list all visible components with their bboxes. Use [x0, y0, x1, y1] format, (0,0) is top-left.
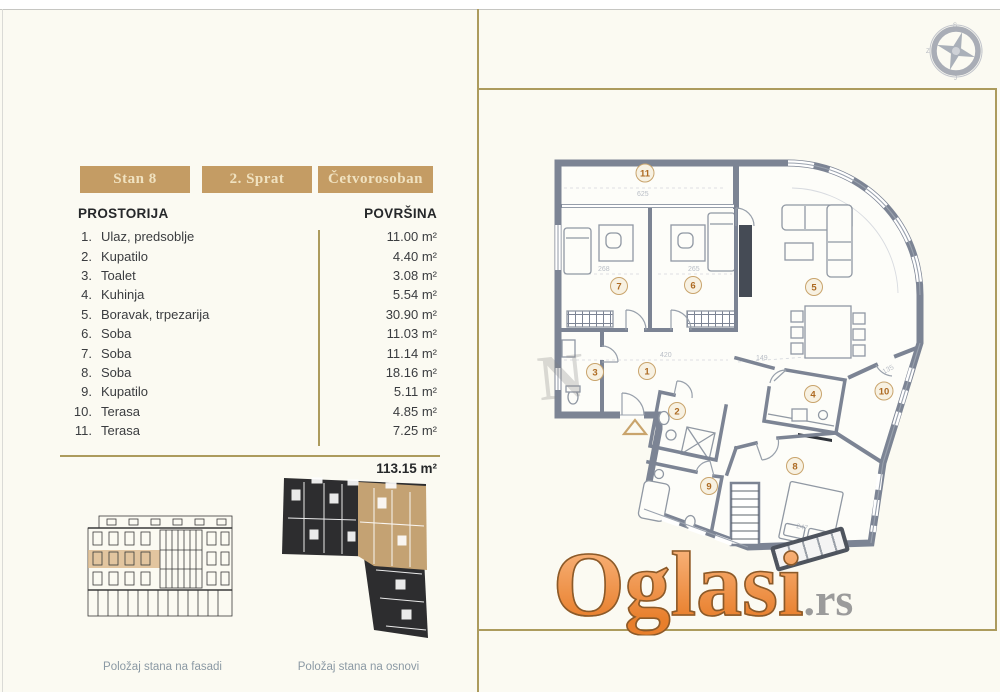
compass-s: J [954, 76, 957, 82]
compass-n: S [953, 23, 957, 29]
badge-type-label: Četvorosoban [328, 171, 423, 188]
svg-text:3: 3 [592, 368, 597, 379]
svg-text:8: 8 [792, 462, 797, 473]
dim-hall: 420 [660, 352, 672, 359]
row-number: 2. [60, 249, 92, 264]
room-number-badge: 11 [636, 164, 654, 182]
table-row: 1.Ulaz, predsoblje11.00 m² [60, 227, 440, 246]
watermark-brand: Oglasi [553, 533, 803, 635]
building-outline-thumbnail [278, 470, 432, 642]
table-row: 6.Soba11.03 m² [60, 324, 440, 343]
floor-plan: 625 268 265 420 149 247 135 1 2 3 4 5 6 … [540, 130, 1000, 600]
room-name: Ulaz, predsoblje [101, 229, 194, 244]
bed-room6 [708, 213, 735, 271]
row-number: 9. [60, 384, 92, 399]
dim-room7: 268 [598, 266, 610, 273]
chair-room6 [678, 233, 693, 248]
svg-text:6: 6 [690, 281, 695, 292]
faint-watermark-letter: N [534, 338, 588, 416]
caption-plan: Položaj stana na osnovi [256, 661, 461, 673]
sink-bath9 [655, 470, 664, 479]
room-area: 11.03 m² [387, 326, 437, 341]
listing-sheet: Stan 8 2. Sprat Četvorosoban PROSTORIJA … [0, 0, 1000, 692]
gold-divider-vertical [477, 9, 479, 692]
compass-w: Z [926, 49, 930, 55]
svg-text:1: 1 [644, 367, 650, 378]
watermark-tld: .rs [803, 574, 853, 625]
dining-table [805, 306, 851, 358]
room-number-badge: 7 [611, 278, 628, 295]
sink-bath2 [666, 430, 676, 440]
caption-facade: Položaj stana na fasadi [60, 661, 265, 673]
room-name: Soba [101, 346, 131, 361]
room-table: 1.Ulaz, predsoblje11.00 m² 2.Kupatilo4.4… [60, 227, 440, 440]
table-row: 9.Kupatilo5.11 m² [60, 382, 440, 401]
svg-text:7: 7 [616, 282, 621, 293]
facade-elevation-thumbnail [85, 512, 237, 618]
site-watermark: Oglasi.rs [553, 538, 853, 630]
room-number-badge: 8 [787, 458, 804, 475]
svg-text:10: 10 [879, 387, 890, 398]
row-number: 6. [60, 326, 92, 341]
wardrobe-living [739, 225, 752, 297]
room-name: Soba [101, 326, 131, 341]
svg-text:9: 9 [706, 482, 711, 493]
compass-e: I [981, 49, 983, 55]
wardrobe-room7 [567, 311, 613, 327]
room-area: 5.54 m² [393, 287, 437, 302]
badge-floor: 2. Sprat [202, 166, 312, 193]
table-row: 11.Terasa7.25 m² [60, 421, 440, 440]
column-header-room: PROSTORIJA [78, 206, 169, 221]
row-number: 5. [60, 307, 92, 322]
room-area: 7.25 m² [393, 423, 437, 438]
room-area: 11.14 m² [387, 346, 437, 361]
row-number: 3. [60, 268, 92, 283]
top-margin [0, 0, 1000, 9]
kitchen-sink [819, 411, 828, 420]
total-rule [60, 455, 440, 457]
room-name: Terasa [101, 423, 140, 438]
chair-room7 [606, 233, 621, 248]
dim-terrace11: 625 [637, 191, 649, 198]
badge-apartment: Stan 8 [80, 166, 190, 193]
column-header-area: POVRŠINA [300, 206, 437, 221]
table-row: 2.Kupatilo4.40 m² [60, 246, 440, 265]
room-number-badge: 3 [587, 364, 604, 381]
dim-room6: 265 [688, 266, 700, 273]
room-name: Kuhinja [101, 287, 144, 302]
table-column-divider [318, 230, 320, 446]
room-number-badge: 10 [875, 382, 893, 400]
entrance-triangle [624, 420, 646, 434]
svg-text:11: 11 [640, 169, 651, 180]
room-name: Boravak, trpezarija [101, 307, 209, 322]
room-name: Toalet [101, 268, 136, 283]
wc-bath2 [659, 412, 669, 425]
room-area: 4.40 m² [393, 249, 437, 264]
gold-rule-top [477, 88, 997, 90]
stove [792, 409, 807, 421]
left-border-line [2, 9, 3, 692]
room-number-badge: 9 [701, 478, 718, 495]
svg-text:2: 2 [674, 407, 679, 418]
table-row: 4.Kuhinja5.54 m² [60, 285, 440, 304]
room-number-badge: 5 [806, 279, 823, 296]
svg-text:5: 5 [811, 283, 817, 294]
room-number-badge: 4 [805, 386, 822, 403]
row-number: 10. [60, 404, 92, 419]
row-number: 8. [60, 365, 92, 380]
table-row: 5.Boravak, trpezarija30.90 m² [60, 305, 440, 324]
table-row: 3.Toalet3.08 m² [60, 266, 440, 285]
table-row: 10.Terasa4.85 m² [60, 402, 440, 421]
badge-apartment-label: Stan 8 [113, 171, 156, 188]
row-number: 4. [60, 287, 92, 302]
badge-floor-label: 2. Sprat [230, 171, 285, 188]
room-area: 4.85 m² [393, 404, 437, 419]
row-number: 11. [60, 423, 92, 438]
room-area: 18.16 m² [386, 365, 437, 380]
room-number-badge: 2 [669, 403, 686, 420]
room-name: Terasa [101, 404, 140, 419]
coffee-table [785, 243, 813, 260]
svg-text:4: 4 [810, 390, 816, 401]
row-number: 1. [60, 229, 92, 244]
dim-hall2: 149 [756, 355, 768, 362]
wardrobe-room6 [687, 311, 735, 327]
room-area: 5.11 m² [394, 384, 437, 399]
table-row: 7.Soba11.14 m² [60, 343, 440, 362]
bed-room7 [564, 228, 591, 274]
badge-type: Četvorosoban [318, 166, 433, 193]
room-area: 3.08 m² [393, 268, 437, 283]
room-name: Kupatilo [101, 249, 148, 264]
table-row: 8.Soba18.16 m² [60, 363, 440, 382]
room-number-badge: 1 [639, 363, 656, 380]
room-name: Soba [101, 365, 131, 380]
room-area: 30.90 m² [386, 307, 437, 322]
room-name: Kupatilo [101, 384, 148, 399]
room-area: 11.00 m² [387, 229, 437, 244]
room-number-badge: 6 [685, 277, 702, 294]
row-number: 7. [60, 346, 92, 361]
top-border-line [0, 9, 1000, 10]
compass-rose-icon: S I J Z [925, 20, 987, 82]
